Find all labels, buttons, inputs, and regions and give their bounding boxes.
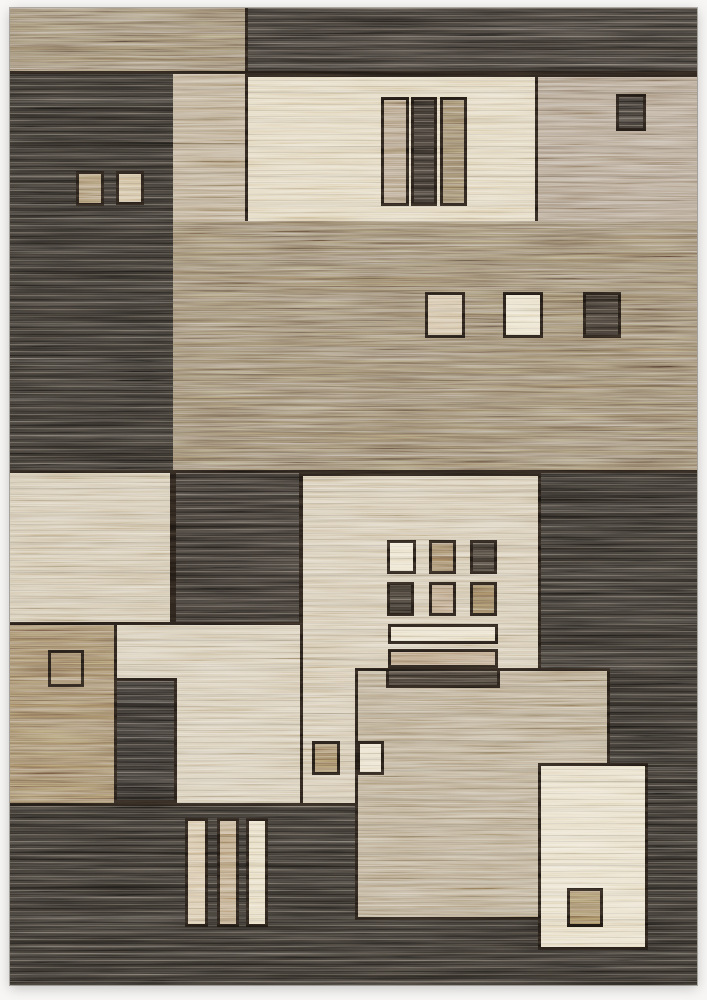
- square-top-right-dark: [616, 94, 646, 131]
- dark-mid-block: [173, 470, 302, 625]
- grid-square-dark: [470, 540, 497, 574]
- vertical-bar-brown: [440, 97, 467, 206]
- top-band-dark: [248, 8, 697, 74]
- vertical-bar-dark: [411, 97, 437, 206]
- outline-square-brown-panel: [48, 650, 84, 687]
- rug: [10, 8, 697, 985]
- left-beige-panel: [10, 470, 173, 625]
- small-square-cream-b: [357, 741, 384, 775]
- horizontal-bar-dark: [386, 668, 500, 688]
- square-bottom-brown: [567, 888, 603, 927]
- square-band-dark: [583, 292, 621, 338]
- square-band-cream: [503, 292, 543, 338]
- vertical-bar-tan: [381, 97, 409, 206]
- horizontal-bar-tan: [388, 649, 498, 668]
- tan-strip: [173, 74, 248, 224]
- square-band-beige: [425, 292, 465, 338]
- grid-square-brown-2: [470, 582, 497, 616]
- top-band-brown: [10, 8, 248, 74]
- grid-square-brown: [429, 540, 456, 574]
- grid-square-cream: [387, 540, 416, 574]
- square-leftcol-beige: [116, 171, 144, 205]
- bottom-bar-tan: [217, 818, 239, 927]
- grid-square-tan: [429, 582, 456, 616]
- bottom-bar-beige: [185, 818, 208, 927]
- grid-square-dark-2: [387, 582, 414, 616]
- square-leftcol-brown: [76, 171, 104, 206]
- photo-background: [0, 0, 707, 1000]
- bottom-bar-cream: [246, 818, 268, 927]
- horizontal-bar-cream: [388, 624, 498, 644]
- small-square-brown-a: [312, 741, 340, 775]
- dark-vertical-block: [114, 678, 177, 803]
- brown-band: [173, 221, 697, 473]
